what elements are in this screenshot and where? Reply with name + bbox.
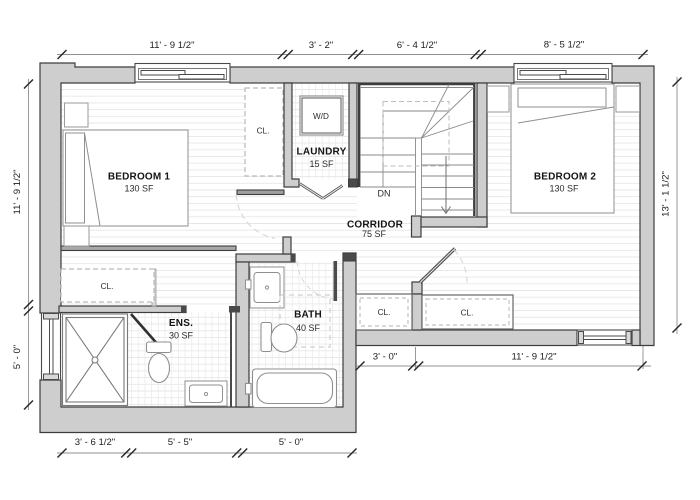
svg-text:3' - 6 1/2": 3' - 6 1/2" [75,437,115,448]
svg-text:3' - 0": 3' - 0" [373,352,397,363]
svg-text:CL.: CL. [461,309,474,318]
svg-text:LAUNDRY: LAUNDRY [297,147,347,158]
svg-text:11' - 9 1/2": 11' - 9 1/2" [149,40,194,51]
svg-text:15 SF: 15 SF [309,159,334,169]
svg-text:DN: DN [378,189,391,199]
svg-text:5' - 0": 5' - 0" [12,345,23,369]
svg-text:CL.: CL. [257,127,270,136]
svg-text:11' - 9 1/2": 11' - 9 1/2" [12,169,23,214]
svg-text:BEDROOM 2: BEDROOM 2 [534,172,597,183]
svg-text:CL.: CL. [378,308,391,317]
svg-text:BATH: BATH [294,310,322,321]
svg-text:13' - 1 1/2": 13' - 1 1/2" [661,171,672,217]
svg-text:W/D: W/D [313,112,329,121]
svg-text:5' - 0": 5' - 0" [279,437,303,448]
svg-text:130 SF: 130 SF [549,184,579,194]
svg-text:30 SF: 30 SF [169,331,194,341]
svg-text:40 SF: 40 SF [296,323,321,333]
svg-text:6' - 4 1/2": 6' - 4 1/2" [397,40,437,51]
svg-text:ENS.: ENS. [169,318,193,329]
svg-text:3' - 2": 3' - 2" [309,40,333,51]
svg-text:CL.: CL. [101,282,114,291]
svg-text:BEDROOM 1: BEDROOM 1 [108,172,171,183]
svg-text:75 SF: 75 SF [362,229,387,239]
svg-text:5' - 5": 5' - 5" [168,437,192,448]
svg-text:130 SF: 130 SF [124,184,154,194]
svg-text:11' - 9 1/2": 11' - 9 1/2" [511,352,556,363]
svg-text:8' - 5 1/2": 8' - 5 1/2" [544,40,584,51]
